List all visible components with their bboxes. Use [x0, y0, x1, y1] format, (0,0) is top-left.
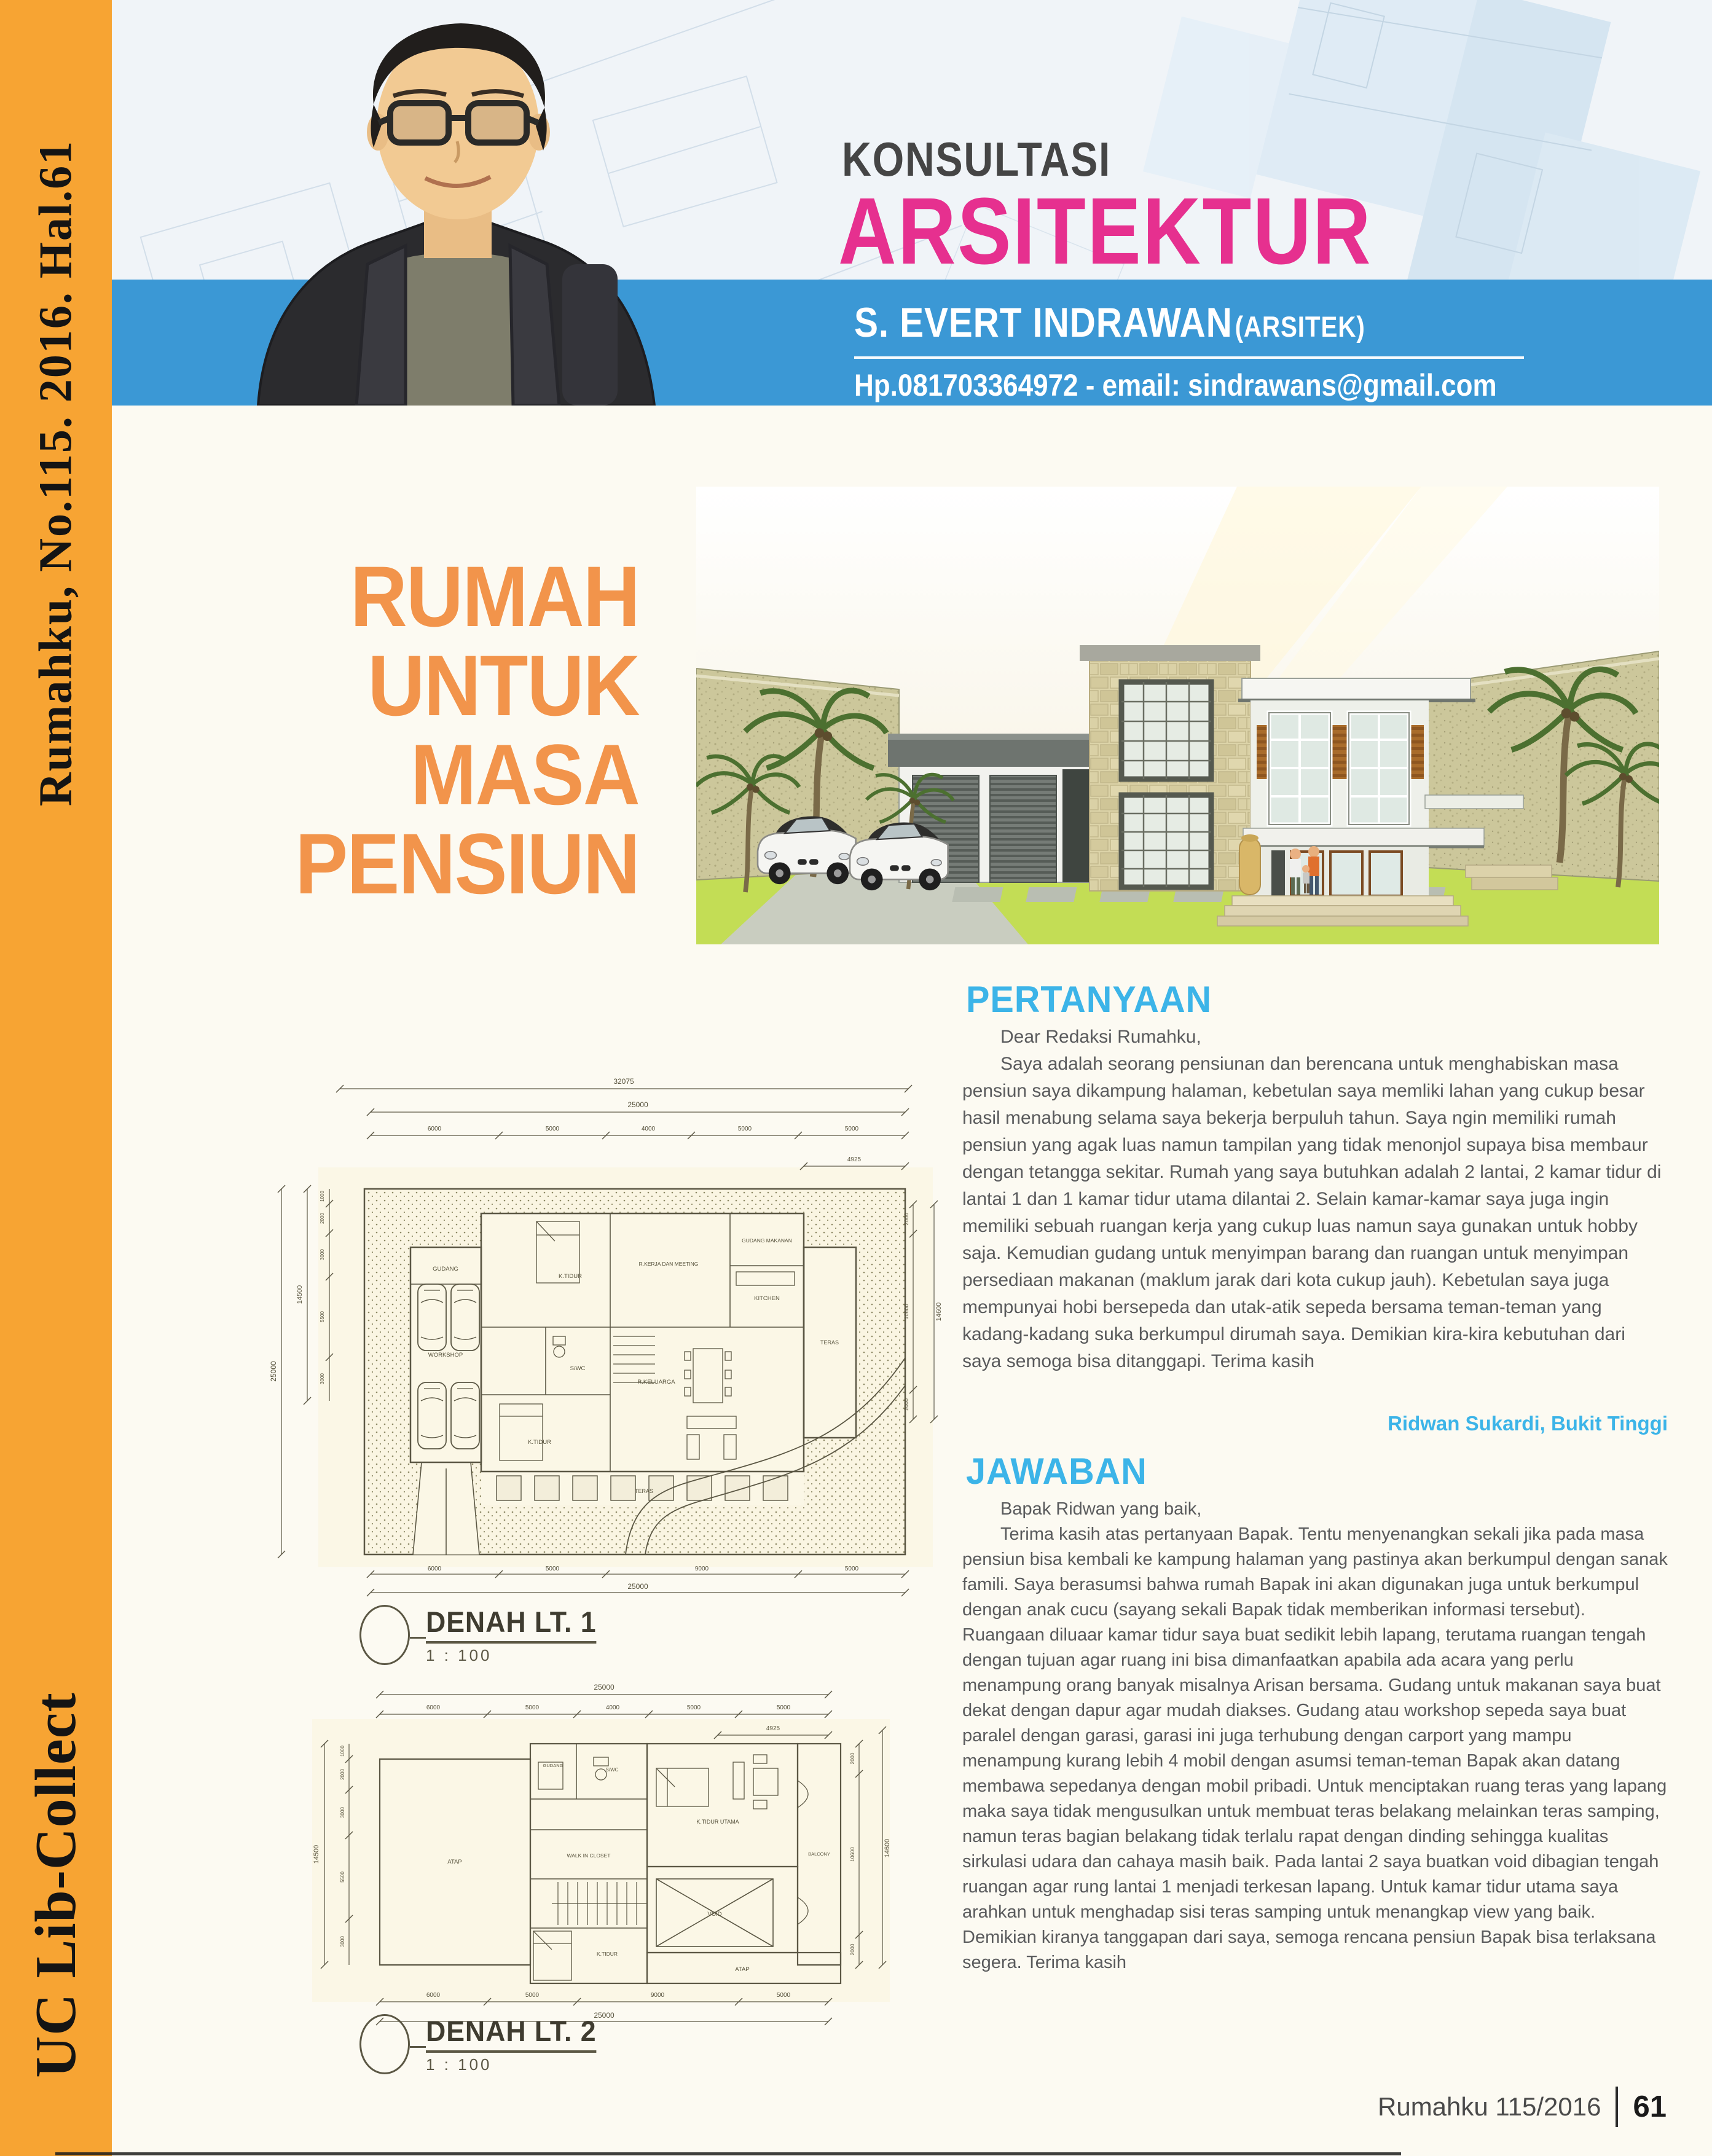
svg-text:25000: 25000 — [627, 1100, 648, 1109]
plan-sheet — [312, 1719, 890, 2002]
svg-text:ATAP: ATAP — [447, 1859, 461, 1865]
page-footer: Rumahku 115/2016 61 — [1378, 2087, 1667, 2127]
svg-text:K.TIDUR UTAMA: K.TIDUR UTAMA — [696, 1819, 739, 1825]
svg-text:5000: 5000 — [845, 1126, 859, 1132]
garage-roof — [888, 737, 1104, 767]
tower-roof-slab — [1080, 645, 1260, 661]
svg-text:ATAP: ATAP — [735, 1966, 749, 1973]
svg-text:2000: 2000 — [340, 1769, 345, 1780]
svg-text:5000: 5000 — [525, 1704, 540, 1711]
headline-line: UNTUK — [266, 641, 639, 730]
svg-text:14500: 14500 — [313, 1845, 320, 1864]
plan-label-connector — [410, 1637, 426, 1639]
svg-text:14600: 14600 — [935, 1303, 943, 1322]
architect-name-row: S. EVERT INDRAWAN (ARSITEK) — [854, 299, 1365, 347]
footer-issue: Rumahku 115/2016 — [1378, 2092, 1601, 2122]
svg-text:25000: 25000 — [269, 1361, 278, 1382]
svg-text:5000: 5000 — [546, 1566, 560, 1572]
svg-text:6000: 6000 — [428, 1566, 442, 1572]
garden-jar — [1239, 834, 1260, 895]
scan-edge-line — [55, 2152, 1401, 2155]
architect-name: S. EVERT INDRAWAN — [854, 299, 1233, 346]
garage-louver-door — [990, 775, 1056, 882]
plan-label-connector — [410, 2046, 426, 2048]
sidebar-orange-strip: Rumahku, No.115. 2016. Hal.61 UC Lib-Col… — [0, 0, 112, 2156]
svg-text:3000: 3000 — [340, 1807, 345, 1818]
svg-text:R.KELUARGA: R.KELUARGA — [637, 1379, 675, 1386]
svg-text:5000: 5000 — [525, 1992, 540, 1999]
header-banner: KONSULTASI ARSITEKTUR S. EVERT INDRAWAN … — [112, 0, 1712, 406]
entry-door — [1271, 850, 1285, 896]
svg-text:10600: 10600 — [903, 1304, 909, 1319]
floor-plan-2: ATAP GUDANG S/WC K.TIDUR UTAMA WALK IN C… — [288, 1676, 902, 2036]
svg-text:9000: 9000 — [651, 1992, 665, 1999]
plan1-title: DENAH LT. 1 — [426, 1605, 597, 1644]
svg-text:4000: 4000 — [642, 1126, 656, 1132]
svg-text:6000: 6000 — [428, 1126, 442, 1132]
floor-slab — [1243, 828, 1484, 847]
svg-text:5000: 5000 — [845, 1566, 859, 1572]
svg-text:32075: 32075 — [613, 1077, 634, 1086]
entrance-steps — [1217, 896, 1468, 926]
svg-text:2000: 2000 — [320, 1213, 325, 1224]
svg-text:2000: 2000 — [903, 1398, 909, 1411]
svg-text:BALCONY: BALCONY — [808, 1851, 830, 1857]
upper-roof-slab — [1242, 678, 1471, 699]
answer-heading: JAWABAN — [966, 1450, 1147, 1492]
svg-text:K.TIDUR: K.TIDUR — [559, 1273, 582, 1280]
svg-text:1000: 1000 — [340, 1746, 345, 1757]
sidebar-issue-label: Rumahku, No.115. 2016. Hal.61 — [29, 140, 83, 806]
svg-text:2000: 2000 — [849, 1752, 855, 1764]
svg-text:GUDANG: GUDANG — [433, 1266, 458, 1272]
plan2-scale: 1 : 100 — [426, 2055, 605, 2074]
plan-bubble-icon — [359, 1605, 410, 1665]
answer-text: Bapak Ridwan yang baik, Terima kasih ata… — [962, 1497, 1668, 1975]
architect-role: (ARSITEK) — [1235, 310, 1365, 343]
architect-photo — [203, 0, 713, 406]
svg-text:R.KERJA DAN MEETING: R.KERJA DAN MEETING — [639, 1261, 699, 1267]
tower-window-upper — [1121, 682, 1211, 779]
headline-line: RUMAH — [266, 552, 639, 641]
question-text: Dear Redaksi Rumahku, Saya adalah seoran… — [962, 1024, 1668, 1375]
plan2-label: DENAH LT. 2 1 : 100 — [359, 2014, 605, 2074]
floor-plan-1: GUDANG WORKSHOP K.TIDUR R.KERJA DAN MEET… — [263, 1063, 945, 1604]
article-headline: RUMAH UNTUK MASA PENSIUN — [266, 552, 639, 908]
svg-text:14500: 14500 — [296, 1285, 304, 1304]
upper-window — [1269, 713, 1330, 825]
svg-text:25000: 25000 — [594, 1683, 615, 1691]
plan-bubble-icon — [359, 2014, 410, 2074]
svg-text:4925: 4925 — [847, 1156, 862, 1163]
name-underline — [854, 356, 1524, 359]
svg-text:5000: 5000 — [777, 1992, 791, 1999]
headline-line: PENSIUN — [266, 819, 639, 908]
svg-text:3000: 3000 — [320, 1373, 325, 1384]
svg-text:5000: 5000 — [777, 1704, 791, 1711]
svg-text:TERAS: TERAS — [820, 1339, 839, 1346]
svg-text:5000: 5000 — [546, 1126, 560, 1132]
side-terrace-steps — [1466, 865, 1558, 890]
column-title: ARSITEKTUR — [838, 177, 1372, 286]
svg-text:5500: 5500 — [320, 1311, 325, 1322]
svg-text:GUDANG: GUDANG — [543, 1763, 563, 1768]
headline-line: MASA — [266, 730, 639, 819]
svg-text:K.TIDUR: K.TIDUR — [597, 1951, 618, 1957]
svg-text:6000: 6000 — [426, 1704, 441, 1711]
svg-text:2000: 2000 — [903, 1213, 909, 1225]
backpack-side — [562, 264, 618, 406]
magazine-page: Rumahku, No.115. 2016. Hal.61 UC Lib-Col… — [0, 0, 1712, 2156]
svg-text:TERAS: TERAS — [635, 1488, 653, 1494]
plan2-title: DENAH LT. 2 — [426, 2014, 597, 2053]
svg-text:S/WC: S/WC — [570, 1365, 586, 1372]
svg-text:5000: 5000 — [687, 1704, 701, 1711]
question-heading: PERTANYAAN — [966, 978, 1212, 1021]
svg-text:1000: 1000 — [320, 1191, 325, 1202]
svg-text:25000: 25000 — [627, 1582, 648, 1591]
svg-text:VOID: VOID — [707, 1911, 721, 1918]
svg-text:GUDANG MAKANAN: GUDANG MAKANAN — [742, 1237, 792, 1244]
architect-contact: Hp.081703364972 - email: sindrawans@gmai… — [854, 367, 1497, 403]
svg-text:K.TIDUR: K.TIDUR — [528, 1439, 551, 1446]
answer-body: Terima kasih atas pertanyaan Bapak. Tent… — [962, 1522, 1668, 1975]
question-salutation: Dear Redaksi Rumahku, — [962, 1024, 1668, 1051]
plan1-label: DENAH LT. 1 1 : 100 — [359, 1605, 605, 1665]
svg-text:3000: 3000 — [320, 1249, 325, 1260]
svg-text:KITCHEN: KITCHEN — [754, 1295, 780, 1302]
svg-text:5500: 5500 — [340, 1872, 345, 1883]
svg-text:9000: 9000 — [695, 1566, 709, 1572]
tower-window-lower — [1121, 795, 1211, 887]
upper-window — [1349, 713, 1409, 825]
svg-text:WORKSHOP: WORKSHOP — [428, 1352, 463, 1358]
svg-text:2000: 2000 — [849, 1943, 855, 1955]
svg-text:10600: 10600 — [849, 1847, 855, 1862]
footer-page-number: 61 — [1633, 2090, 1667, 2124]
svg-text:S/WC: S/WC — [606, 1767, 619, 1773]
t-shirt — [387, 253, 528, 406]
svg-text:WALK IN CLOSET: WALK IN CLOSET — [567, 1852, 610, 1859]
terrace-roof — [1425, 795, 1523, 809]
plan1-scale: 1 : 100 — [426, 1646, 605, 1665]
question-signature: Ridwan Sukardi, Bukit Tinggi — [962, 1412, 1668, 1435]
svg-text:5000: 5000 — [738, 1126, 752, 1132]
svg-text:14600: 14600 — [884, 1839, 891, 1858]
garage-roof-edge — [888, 734, 1104, 740]
question-body: Saya adalah seorang pensiunan dan berenc… — [962, 1051, 1668, 1375]
footer-divider — [1616, 2087, 1618, 2127]
svg-text:6000: 6000 — [426, 1992, 441, 1999]
sidebar-library-label: UC Lib-Collect — [23, 1692, 89, 2078]
house-render-image — [696, 487, 1659, 944]
svg-text:3000: 3000 — [340, 1936, 345, 1947]
svg-text:4925: 4925 — [766, 1725, 780, 1732]
answer-salutation: Bapak Ridwan yang baik, — [962, 1497, 1668, 1522]
svg-text:4000: 4000 — [606, 1704, 620, 1711]
